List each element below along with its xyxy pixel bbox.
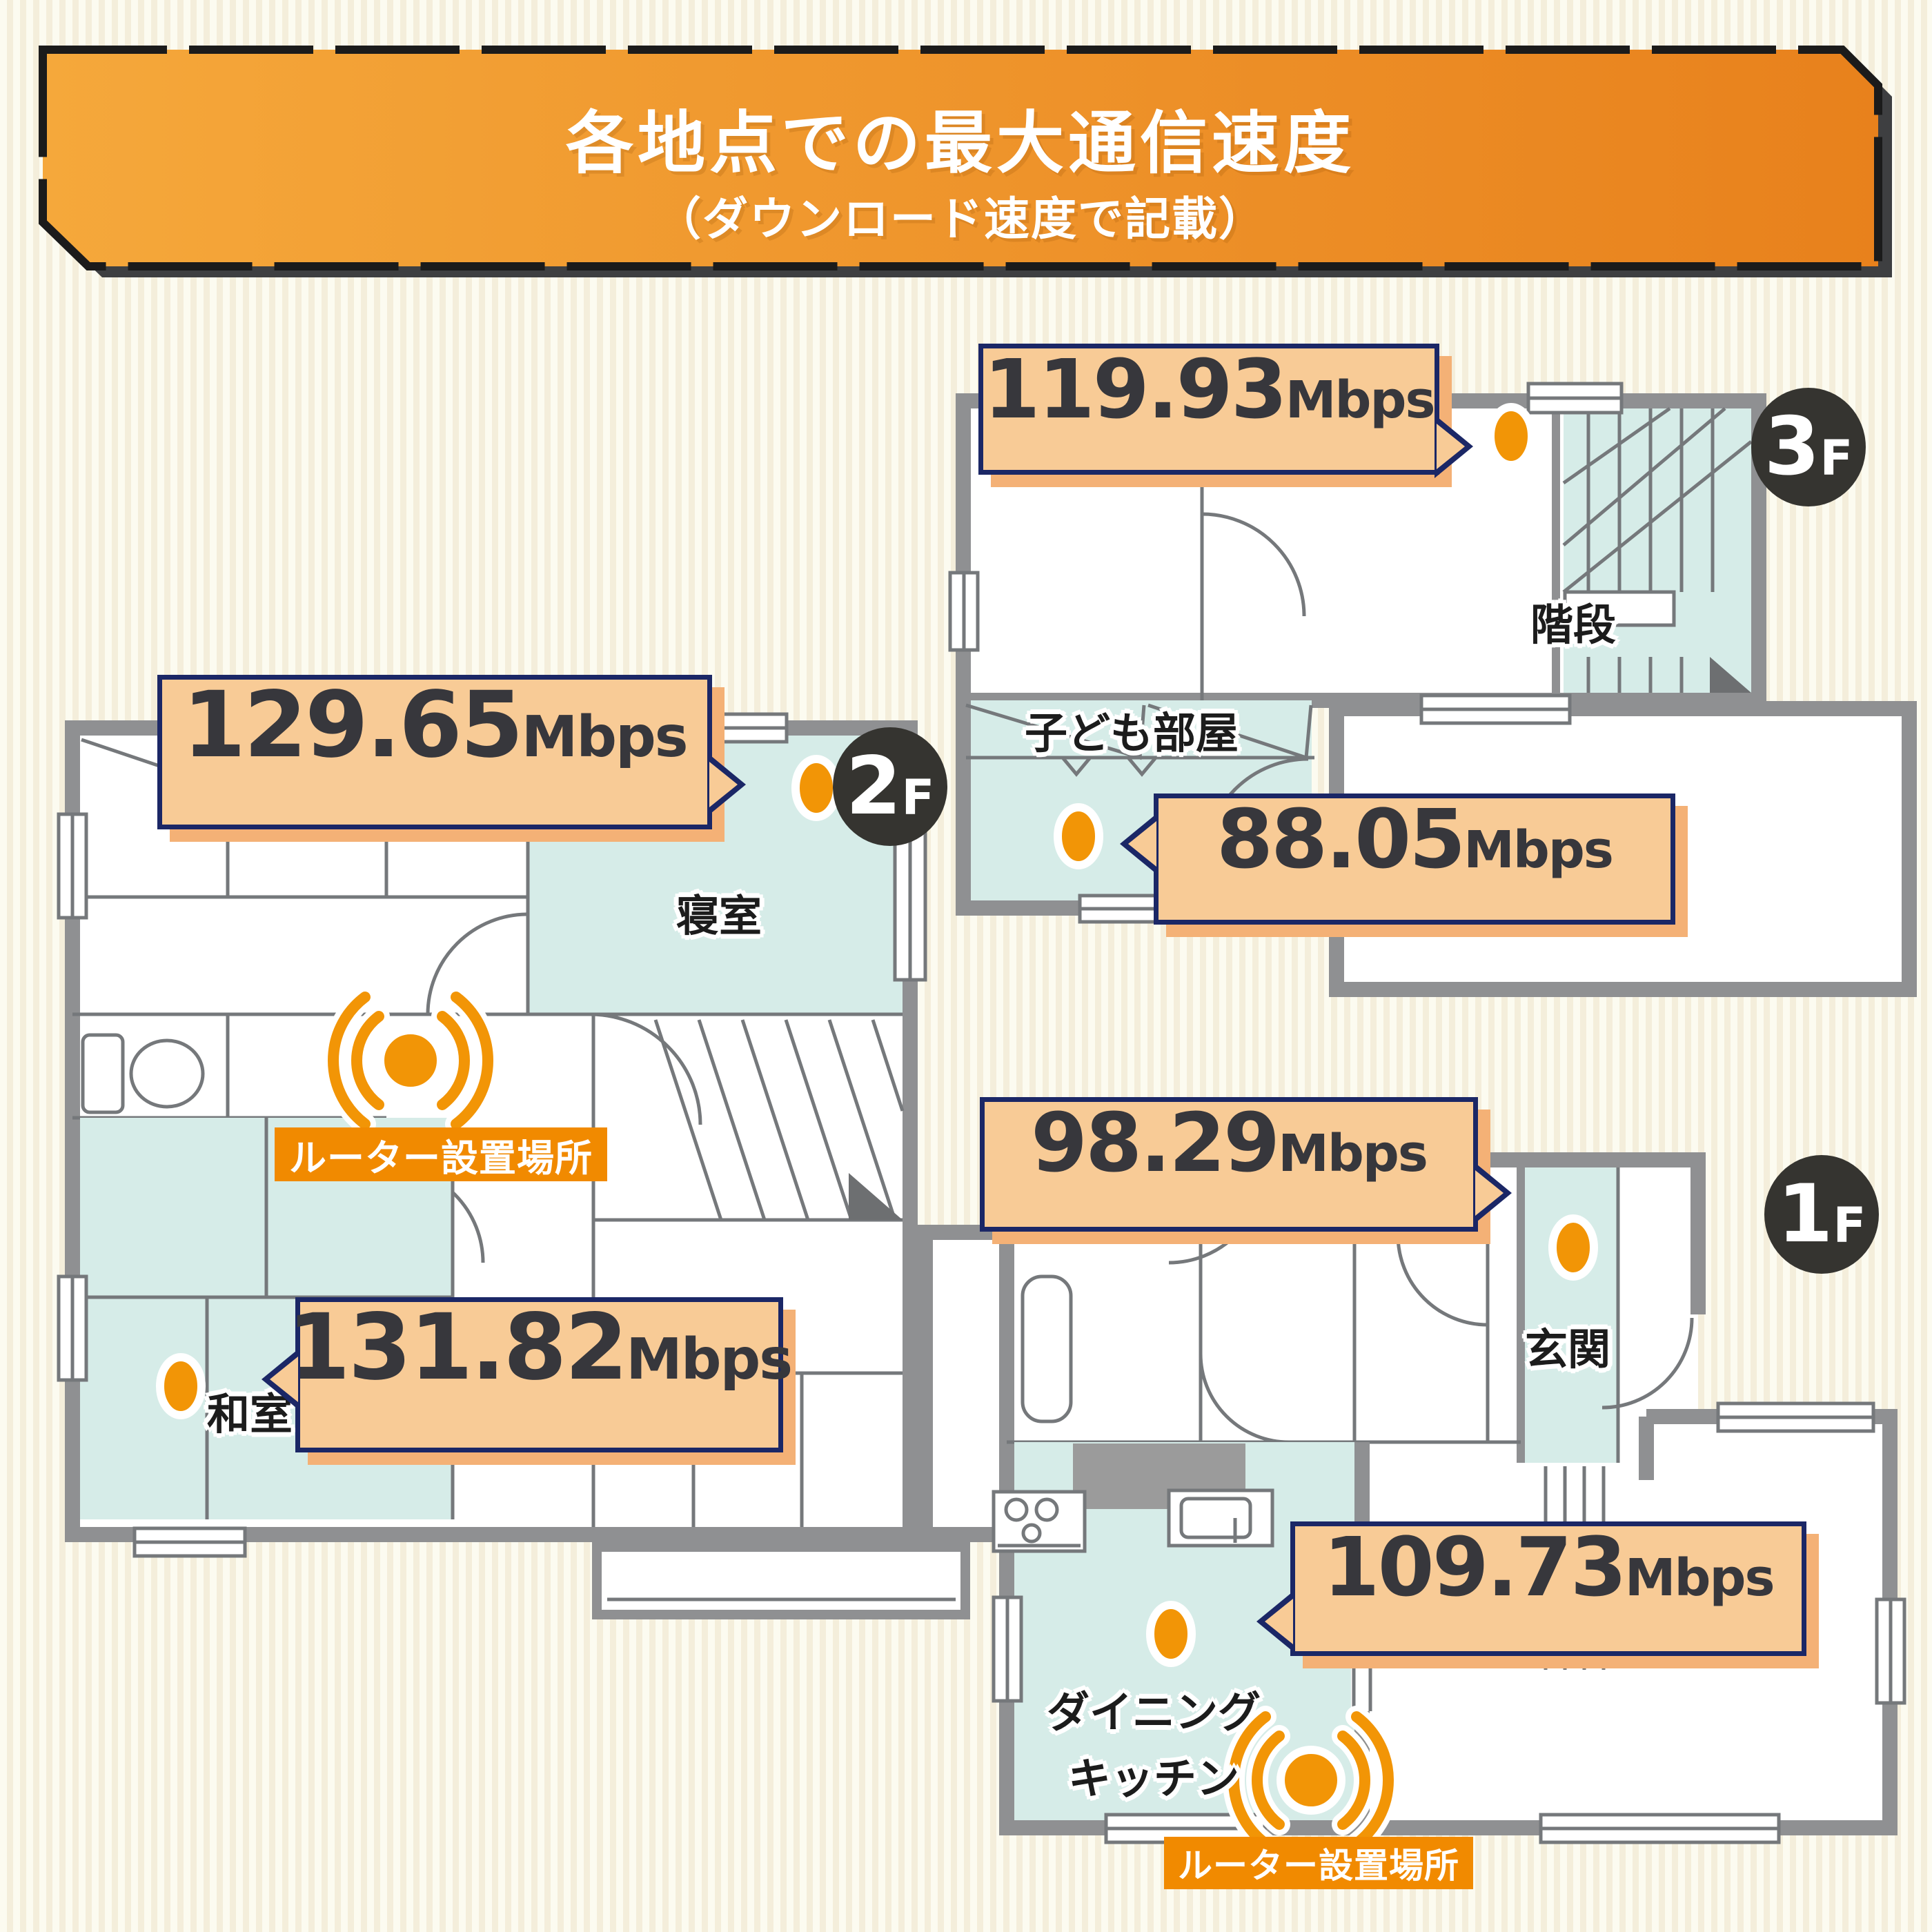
measurement-dot-1f-dining	[1150, 1605, 1192, 1663]
room-label-kids-room: 子ども部屋	[1025, 698, 1239, 760]
bubble-tail	[1256, 1590, 1295, 1653]
measurement-dot-3f-stairs	[1490, 407, 1532, 465]
speed-value: 131.82	[287, 1302, 626, 1393]
floor-badge-1f-number: 1	[1777, 1174, 1833, 1254]
room-label-dining-line2: キッチン	[1047, 1746, 1261, 1812]
speed-bubble-1f-dining: 109.73 Mbps	[1290, 1521, 1806, 1656]
floor-badge-2f-suffix: F	[901, 773, 934, 822]
speed-bubble-2f-bedroom: 129.65 Mbps	[157, 675, 712, 829]
speed-unit: Mbps	[1278, 1128, 1427, 1179]
floor-badge-3f-suffix: F	[1820, 434, 1853, 482]
measurement-dot-2f-washitsu	[160, 1357, 201, 1415]
speed-unit: Mbps	[522, 709, 687, 766]
speed-bubble-2f-washitsu: 131.82 Mbps	[295, 1297, 783, 1452]
page-subtitle: （ダウンロード速度で記載）	[43, 182, 1878, 248]
floor-badge-1f: 1F	[1764, 1155, 1879, 1274]
speed-value: 119.93	[984, 348, 1285, 430]
measurement-dot-1f-genkan	[1552, 1219, 1594, 1276]
floor-badge-2f-number: 2	[846, 747, 902, 827]
floor-badge-1f-suffix: F	[1833, 1201, 1866, 1250]
speed-value: 88.05	[1216, 798, 1463, 880]
infographic-canvas: 各地点での最大通信速度 （ダウンロード速度で記載） 3F 2F 1F 階段 子ど…	[0, 0, 1932, 1932]
speed-value: 109.73	[1323, 1526, 1625, 1608]
room-label-dining-kitchen: ダイニング キッチン	[1047, 1679, 1261, 1812]
room-label-genkan: 玄関	[1525, 1314, 1610, 1377]
floor-badge-3f-number: 3	[1764, 407, 1820, 487]
floor-badge-3f: 3F	[1751, 388, 1866, 506]
router-location-label-2f: ルーター設置場所	[275, 1127, 607, 1181]
speed-bubble-1f-genkan: 98.29 Mbps	[980, 1097, 1478, 1232]
page-title: 各地点での最大通信速度	[43, 88, 1878, 186]
bubble-tail	[1473, 1161, 1512, 1225]
speed-unit: Mbps	[1625, 1552, 1774, 1604]
bubble-tail	[707, 753, 746, 816]
bubble-tail	[1120, 812, 1159, 876]
speed-value: 129.65	[182, 680, 521, 771]
speed-unit: Mbps	[1285, 375, 1435, 426]
room-label-bedroom: 寝室	[676, 881, 762, 943]
speed-bubble-3f-kids-room: 88.05 Mbps	[1154, 793, 1675, 925]
room-label-stairs: 階段	[1530, 590, 1616, 652]
router-location-label-1f: ルーター設置場所	[1164, 1837, 1473, 1889]
measurement-dot-2f-bedroom	[796, 759, 837, 817]
bubble-tail	[262, 1348, 300, 1411]
bubble-tail	[1435, 415, 1473, 478]
room-label-dining-line1: ダイニング	[1047, 1679, 1261, 1746]
speed-value: 98.29	[1031, 1102, 1278, 1183]
speed-unit: Mbps	[626, 1332, 791, 1388]
speed-unit: Mbps	[1463, 825, 1613, 876]
measurement-dot-3f-kids-room	[1058, 807, 1099, 865]
speed-bubble-3f-stairs: 119.93 Mbps	[978, 344, 1439, 475]
floor-badge-2f: 2F	[833, 727, 947, 846]
